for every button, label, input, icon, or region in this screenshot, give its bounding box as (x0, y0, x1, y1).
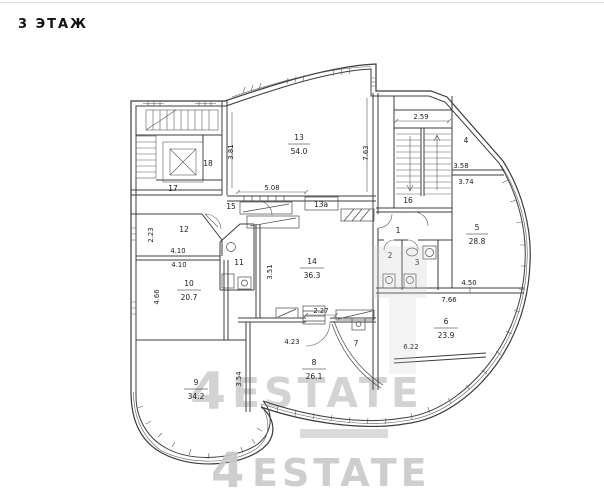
room-10-number: 10 (184, 279, 194, 288)
room-label-1: 1 (396, 226, 401, 235)
watermark-bottom-word: ESTATE (252, 451, 431, 490)
room-5-area: 28.8 (469, 237, 486, 246)
dim-3-58: 3.58 (453, 162, 468, 170)
room-9-number: 9 (194, 378, 199, 387)
dim-4-50: 4.50 (461, 279, 476, 287)
room-13-number: 13 (294, 133, 304, 142)
room-10-area: 20.7 (181, 293, 198, 302)
room-label-6: 6 23.9 (434, 317, 458, 340)
room-5-number: 5 (475, 223, 480, 232)
room-label-18: 18 (203, 159, 213, 168)
room-label-17: 17 (168, 184, 178, 193)
room-9-area: 34.2 (188, 392, 205, 401)
room-label-14: 14 36.3 (300, 257, 324, 280)
dim-4-66: 4.66 (153, 289, 161, 304)
dim-2-27: 2.27 (313, 307, 328, 315)
room-label-11: 11 (234, 258, 244, 267)
room-6-area: 23.9 (438, 331, 455, 340)
watermark-center-word: ESTATE (232, 369, 423, 417)
dim-3-74: 3.74 (458, 178, 473, 186)
dim-7-66: 7.66 (441, 296, 456, 304)
dim-4-23: 4.23 (284, 338, 299, 346)
dim-4-10-top: 4.10 (170, 247, 185, 255)
dim-4-10-bottom: 4.10 (171, 261, 186, 269)
dim-3-81: 3.81 (227, 144, 235, 159)
room-label-15: 15 (226, 202, 236, 211)
dim-2-23: 2.23 (147, 227, 155, 242)
room-label-4: 4 (464, 136, 469, 145)
room-label-16: 16 (403, 196, 413, 205)
room-13-area: 54.0 (291, 147, 308, 156)
room-label-13: 13 54.0 (288, 133, 310, 156)
room-label-10: 10 20.7 (177, 279, 201, 302)
floor-plan-page: 3 ЭТАЖ 4 ESTATE (0, 0, 604, 490)
dim-2-59: 2.59 (413, 113, 428, 121)
watermark-bottom-4: 4 (211, 443, 244, 490)
room-14-number: 14 (307, 257, 317, 266)
room-14-area: 36.3 (304, 271, 321, 280)
room-8-area: 26.1 (306, 372, 323, 381)
watermark-bottom: 4 ESTATE (211, 443, 431, 490)
room-labels: 13 54.0 14 36.3 5 28.8 6 23.9 8 (168, 133, 488, 401)
dim-5-08: 5.08 (264, 184, 279, 192)
room-label-7: 7 (354, 339, 359, 348)
room-8-number: 8 (312, 358, 317, 367)
room-label-12: 12 (179, 225, 189, 234)
dim-3-54: 3.54 (235, 371, 243, 386)
room-label-13a: 13а (314, 200, 328, 209)
room-label-5: 5 28.8 (466, 223, 488, 246)
dim-3-51: 3.51 (266, 264, 274, 279)
dim-7-63: 7.63 (362, 145, 370, 160)
room-6-number: 6 (444, 317, 449, 326)
floor-plan: 4 ESTATE (0, 0, 604, 490)
